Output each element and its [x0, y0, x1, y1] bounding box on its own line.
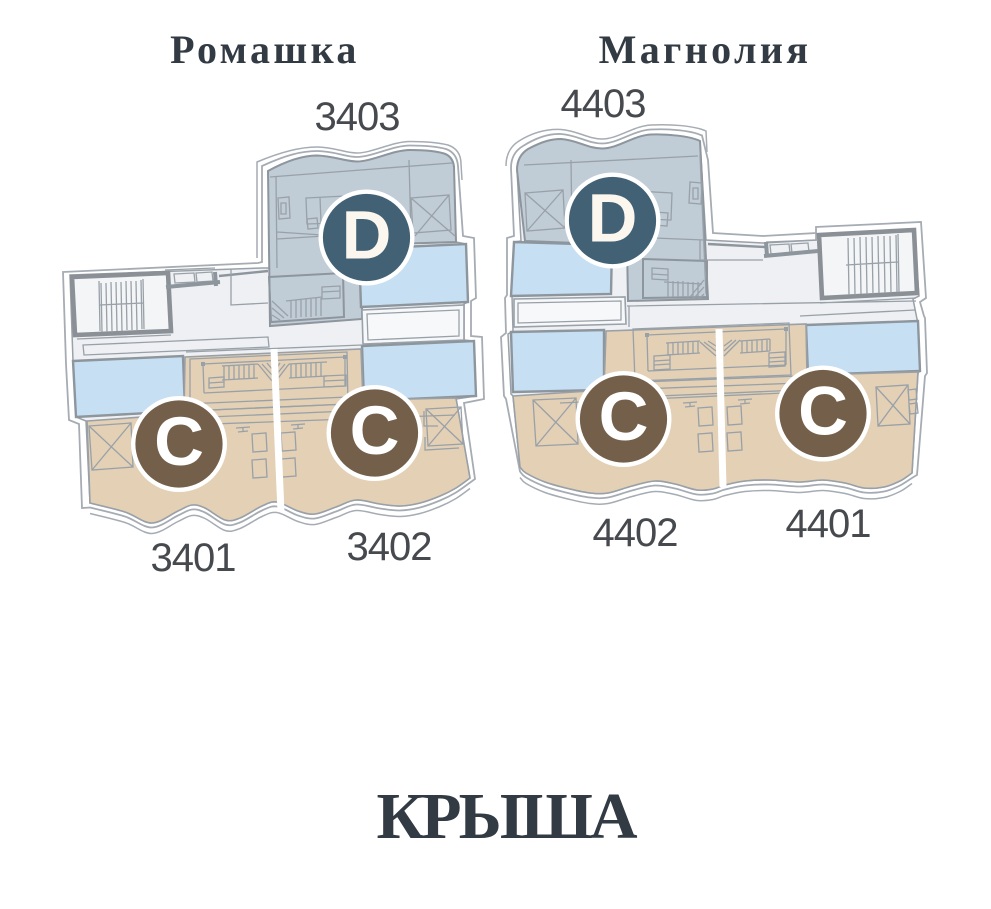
svg-text:4403: 4403 [561, 82, 646, 126]
svg-text:КРЫША: КРЫША [376, 780, 637, 853]
svg-text:3402: 3402 [347, 525, 432, 569]
svg-text:C: C [798, 373, 848, 450]
svg-text:4401: 4401 [786, 502, 871, 546]
svg-text:3401: 3401 [151, 536, 236, 580]
svg-text:C: C [154, 403, 204, 480]
svg-text:C: C [599, 378, 649, 455]
svg-text:4402: 4402 [593, 511, 678, 555]
svg-text:C: C [350, 392, 400, 469]
svg-text:Магнолия: Магнолия [599, 27, 812, 72]
svg-text:Ромашка: Ромашка [170, 27, 360, 72]
svg-text:D: D [588, 180, 638, 257]
svg-text:D: D [342, 197, 392, 274]
svg-text:3403: 3403 [315, 95, 400, 139]
